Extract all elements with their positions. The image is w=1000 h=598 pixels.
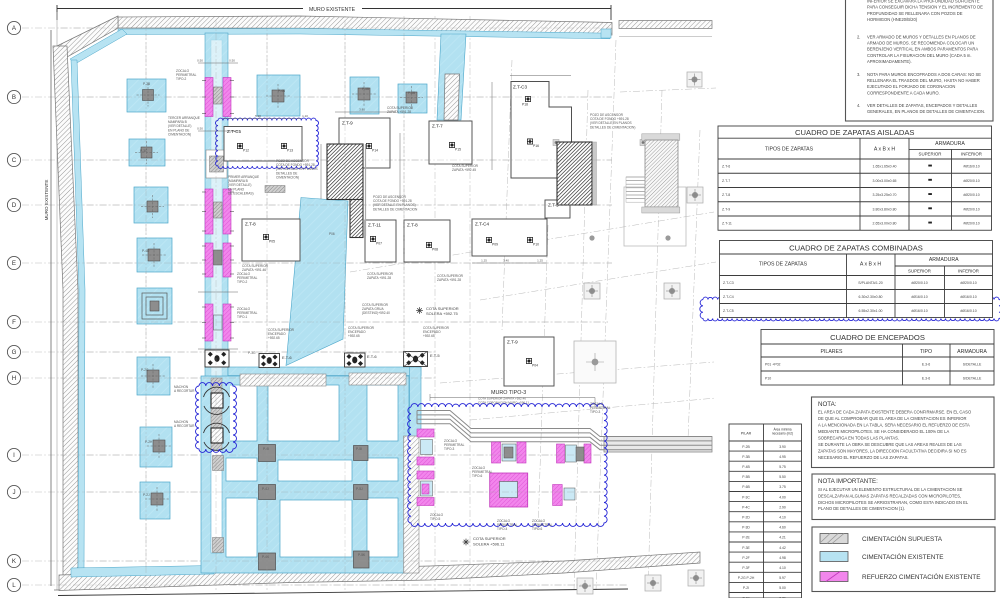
svg-text:A x B x H: A x B x H <box>860 262 882 268</box>
svg-text:P-2B: P-2B <box>143 82 150 86</box>
svg-text:ARMADURA: ARMADURA <box>929 257 959 263</box>
svg-text:ZAPATA +591.28: ZAPATA +591.28 <box>367 276 391 280</box>
svg-text:5.97: 5.97 <box>779 576 786 580</box>
svg-text:VER DETALLES DE ZAPATAS, ENCEP: VER DETALLES DE ZAPATAS, ENCEPADOS Y DET… <box>867 103 978 108</box>
svg-text:P-2I: P-2I <box>743 586 749 590</box>
svg-text:+592.65: +592.65 <box>268 336 280 340</box>
svg-text:P-4K: P-4K <box>262 555 270 559</box>
svg-text:#Ø20/0.10: #Ø20/0.10 <box>963 222 979 226</box>
svg-text:4.10: 4.10 <box>779 566 786 570</box>
svg-text:#Ø16/0.10: #Ø16/0.10 <box>911 309 927 313</box>
svg-text:E: E <box>12 260 16 267</box>
svg-text:P05: P05 <box>269 240 275 244</box>
svg-text:ZAPATAS SON MAYORES, LA DIRECC: ZAPATAS SON MAYORES, LA DIRECCION FACULT… <box>818 449 967 454</box>
svg-text:P-3D: P-3D <box>742 526 750 530</box>
svg-text:I: I <box>13 452 15 459</box>
svg-text:P-3G: P-3G <box>248 351 256 355</box>
svg-text:P-4I: P-4I <box>263 447 269 451</box>
svg-text:P16: P16 <box>533 144 539 148</box>
svg-text:P-3C: P-3C <box>742 495 750 499</box>
svg-text:H: H <box>12 375 16 382</box>
svg-text:PILAR: PILAR <box>741 432 752 436</box>
svg-text:CIMENTACIÓN SUPUESTA: CIMENTACIÓN SUPUESTA <box>862 534 943 543</box>
svg-text:2.: 2. <box>857 35 860 40</box>
svg-text:PILARES: PILARES <box>821 349 843 355</box>
svg-text:NOTA IMPORTANTE:: NOTA IMPORTANTE: <box>818 478 878 485</box>
svg-text:ARMADURA: ARMADURA <box>935 141 965 147</box>
svg-text:6.55x2.30x1.00: 6.55x2.30x1.00 <box>859 309 883 313</box>
svg-text:#Ø20/0.10: #Ø20/0.10 <box>911 281 927 285</box>
svg-text:Z.T-C5: Z.T-C5 <box>723 309 734 313</box>
svg-text:COTA SUPERIOR: COTA SUPERIOR <box>473 536 506 541</box>
svg-text:P-2F: P-2F <box>742 556 749 560</box>
svg-text:CIMENTACIÓN EXISTENTE: CIMENTACIÓN EXISTENTE <box>862 552 944 561</box>
svg-text:P09: P09 <box>492 243 498 247</box>
svg-text:S/DETALLE: S/DETALLE <box>963 363 982 367</box>
svg-text:A RECORTAR: A RECORTAR <box>174 389 195 393</box>
svg-text:Z.T-7: Z.T-7 <box>722 179 730 183</box>
svg-text:PROFUNDIDAD SE RELLENARA CON P: PROFUNDIDAD SE RELLENARA CON POZOS DE <box>867 11 963 16</box>
svg-text:COTA CORONACION MURO +596.11: COTA CORONACION MURO +596.11 <box>478 401 529 405</box>
svg-text:Z.T-C4: Z.T-C4 <box>723 295 734 299</box>
svg-text:NOTA PARA MUROS ENCOFRADOS A D: NOTA PARA MUROS ENCOFRADOS A DOS CARAS: … <box>867 72 981 77</box>
svg-text:5.00: 5.00 <box>779 586 786 590</box>
svg-text:E.3-6: E.3-6 <box>922 377 930 381</box>
svg-text:P-2D: P-2D <box>742 516 750 520</box>
svg-text:CUADRO DE ZAPATAS AISLADAS: CUADRO DE ZAPATAS AISLADAS <box>795 128 914 137</box>
svg-text:P-5B: P-5B <box>742 475 750 479</box>
svg-text:MURO EXISTENTE: MURO EXISTENTE <box>44 180 49 221</box>
svg-text:P01 +P02: P01 +P02 <box>765 363 781 367</box>
svg-text:INFERIOR: INFERIOR <box>961 152 982 157</box>
svg-text:Z.T-C3: Z.T-C3 <box>513 85 527 90</box>
svg-text:4.10: 4.10 <box>779 516 786 520</box>
svg-text:P08: P08 <box>432 248 438 252</box>
svg-text:P18: P18 <box>522 103 528 107</box>
svg-text:#Ø16/0.10: #Ø16/0.10 <box>960 295 976 299</box>
svg-text:P06: P06 <box>329 232 335 236</box>
svg-text:Z.T-C4: Z.T-C4 <box>475 222 489 227</box>
svg-text:DETALLES DE CIMENTACION): DETALLES DE CIMENTACION) <box>590 125 635 129</box>
svg-text:SOLERA +596.11: SOLERA +596.11 <box>473 542 505 547</box>
svg-text:#Ø16/0.10: #Ø16/0.10 <box>960 309 976 313</box>
svg-text:3.80x3.80x0.80: 3.80x3.80x0.80 <box>873 207 897 211</box>
svg-text:TIPOS DE ZAPATAS: TIPOS DE ZAPATAS <box>765 147 814 153</box>
svg-text:#Ø20/0.10: #Ø20/0.10 <box>960 281 976 285</box>
svg-text:E.T-6: E.T-6 <box>367 354 377 359</box>
svg-text:PLANO DE DETALLES DE CIMENTACI: PLANO DE DETALLES DE CIMENTACION (1). <box>818 506 905 511</box>
svg-text:Z.T-11: Z.T-11 <box>722 222 732 226</box>
svg-text:P14: P14 <box>372 149 378 153</box>
svg-text:VER ARMADO DE MUROS Y DETALLES: VER ARMADO DE MUROS Y DETALLES EN PLANOS… <box>867 35 976 40</box>
svg-text:4.60: 4.60 <box>779 526 786 530</box>
svg-text:ARMADURA: ARMADURA <box>957 349 987 355</box>
svg-text:(DESTINO)+592.40: (DESTINO)+592.40 <box>362 311 390 315</box>
svg-text:PARA CONSEGUIR DICHA TENSION Y: PARA CONSEGUIR DICHA TENSION Y EL INCREM… <box>867 5 983 10</box>
svg-text:E.3-6: E.3-6 <box>922 363 930 367</box>
svg-text:P12: P12 <box>243 149 249 153</box>
svg-text:SUPERIOR: SUPERIOR <box>908 268 931 273</box>
svg-text:S/PLANTA/1.20: S/PLANTA/1.20 <box>858 281 883 285</box>
svg-text:TIPO-3: TIPO-3 <box>590 410 600 414</box>
svg-text:ZAPATA +592.45: ZAPATA +592.45 <box>452 168 476 172</box>
svg-text:3.80: 3.80 <box>359 108 365 112</box>
svg-text:L: L <box>12 582 16 589</box>
svg-text:TIPO-6: TIPO-6 <box>532 527 542 531</box>
svg-text:INFERIOR: INFERIOR <box>958 268 979 273</box>
svg-text:NOTA:: NOTA: <box>818 401 837 408</box>
svg-text:MURO TIPO-3: MURO TIPO-3 <box>491 390 526 396</box>
svg-text:A LA MENCIONADA EN LA TABLA, S: A LA MENCIONADA EN LA TABLA, SERA NECESA… <box>818 423 970 428</box>
svg-text:HORMIGON (HNE20/B/20): HORMIGON (HNE20/B/20) <box>867 17 918 22</box>
svg-text:P13: P13 <box>287 149 293 153</box>
svg-text:4.98: 4.98 <box>779 556 786 560</box>
svg-text:P-3E: P-3E <box>742 546 750 550</box>
svg-text:+592.65: +592.65 <box>423 334 435 338</box>
svg-text:P-2G: P-2G <box>141 368 149 372</box>
svg-text:4.95: 4.95 <box>779 455 786 459</box>
svg-text:B: B <box>12 94 16 101</box>
svg-text:4.00: 4.00 <box>779 495 786 499</box>
svg-text:P-2G P-2H: P-2G P-2H <box>738 576 755 580</box>
svg-text:P-5K: P-5K <box>358 553 366 557</box>
svg-text:4.: 4. <box>857 103 860 108</box>
svg-text:TIPO-6: TIPO-6 <box>472 474 482 478</box>
svg-text:DE QUE AL COMPROBAR QUE EL ARE: DE QUE AL COMPROBAR QUE EL AREA DE LA CI… <box>818 416 966 421</box>
svg-text:ZAPATA +591.46: ZAPATA +591.46 <box>242 268 266 272</box>
svg-text:Z.T-8: Z.T-8 <box>407 223 418 228</box>
svg-text:5.75: 5.75 <box>779 465 786 469</box>
svg-text:SI AL EJECUTAR UN ELEMENTO EST: SI AL EJECUTAR UN ELEMENTO ESTRUCTURAL D… <box>818 487 963 492</box>
svg-text:TIPOS DE ZAPATAS: TIPOS DE ZAPATAS <box>759 262 808 268</box>
svg-text:Z.T-C5: Z.T-C5 <box>227 129 241 134</box>
svg-text:+592.65: +592.65 <box>348 334 360 338</box>
svg-text:A x B x H: A x B x H <box>874 147 896 153</box>
svg-text:A RECORTAR: A RECORTAR <box>174 424 195 428</box>
svg-text:D: D <box>12 202 17 209</box>
svg-text:0.50: 0.50 <box>197 127 203 131</box>
svg-text:P-3F: P-3F <box>742 566 749 570</box>
svg-text:CUADRO DE ENCEPADOS: CUADRO DE ENCEPADOS <box>830 333 925 342</box>
svg-text:CUADRO DE ZAPATAS COMBINADAS: CUADRO DE ZAPATAS COMBINADAS <box>789 244 923 253</box>
svg-text:3.: 3. <box>857 72 860 77</box>
svg-text:5.90: 5.90 <box>255 114 261 118</box>
svg-text:C: C <box>12 157 17 164</box>
svg-text:2.90: 2.90 <box>779 505 786 509</box>
svg-text:DETALLES DE CIMENTACION: DETALLES DE CIMENTACION <box>373 207 418 211</box>
svg-text:EL AREA DE CADA ZAPATA EXISTEN: EL AREA DE CADA ZAPATA EXISTENTE DEBERA … <box>818 410 972 415</box>
svg-text:MEDIANTE MICROPILOTES. SE HA C: MEDIANTE MICROPILOTES. SE HA CONSIDERADO… <box>818 429 949 434</box>
svg-text:GENERALES, EN PLANOS DE DETALL: GENERALES, EN PLANOS DE DETALLES DE CIME… <box>867 109 985 114</box>
svg-text:1.10: 1.10 <box>302 114 308 118</box>
svg-text:P-5B: P-5B <box>362 87 369 91</box>
svg-text:S/DETALLE: S/DETALLE <box>963 377 982 381</box>
svg-text:Z.T-9: Z.T-9 <box>507 340 518 345</box>
svg-text:1.25: 1.25 <box>481 259 487 263</box>
svg-text:CORRESPONDIENTE A CADA MURO.: CORRESPONDIENTE A CADA MURO. <box>867 90 940 95</box>
svg-text:P-2E: P-2E <box>742 536 750 540</box>
svg-text:P-4B: P-4B <box>278 89 285 93</box>
svg-text:1.65x1.65x0.40: 1.65x1.65x0.40 <box>873 165 897 169</box>
svg-text:0.50: 0.50 <box>197 59 203 63</box>
svg-text:#Ø20/0.10: #Ø20/0.10 <box>963 207 979 211</box>
svg-text:P-5J: P-5J <box>356 487 363 491</box>
svg-text:DE ESCALERAS): DE ESCALERAS) <box>228 191 254 195</box>
svg-text:REFUERZO CIMENTACIÓN EXISTENTE: REFUERZO CIMENTACIÓN EXISTENTE <box>862 572 980 581</box>
svg-text:CIMENTACION): CIMENTACION) <box>276 175 299 179</box>
svg-text:P-3B: P-3B <box>742 455 750 459</box>
svg-text:1.25: 1.25 <box>537 259 543 263</box>
svg-text:P-5I: P-5I <box>356 447 362 451</box>
svg-text:3.90: 3.90 <box>779 445 786 449</box>
svg-text:P-2J: P-2J <box>143 493 150 497</box>
svg-text:TIPO-1: TIPO-1 <box>237 315 247 319</box>
svg-text:SOLERA +592.75: SOLERA +592.75 <box>426 311 458 316</box>
svg-text:3.40: 3.40 <box>503 259 509 263</box>
svg-text:MURO EXISTENTE: MURO EXISTENTE <box>309 7 356 13</box>
svg-text:P-4B: P-4B <box>742 465 750 469</box>
svg-text:P-2B: P-2B <box>742 445 750 449</box>
svg-text:SUPERIOR: SUPERIOR <box>919 152 942 157</box>
svg-text:P04: P04 <box>532 364 538 368</box>
svg-text:APROXIMADAMENTE).: APROXIMADAMENTE). <box>867 59 912 64</box>
svg-text:3.00x3.00x0.65: 3.00x3.00x0.65 <box>873 179 897 183</box>
svg-text:2.65x3.00x0.80: 2.65x3.00x0.80 <box>873 222 897 226</box>
svg-text:6.30x2.30x0.80: 6.30x2.30x0.80 <box>859 295 883 299</box>
svg-text:P15: P15 <box>455 148 461 152</box>
svg-text:necesario (m2): necesario (m2) <box>772 432 793 436</box>
svg-text:EJECUTADO EL FORJADO DE CORONA: EJECUTADO EL FORJADO DE CORONACION <box>867 84 955 89</box>
svg-text:Z.T-8: Z.T-8 <box>722 193 730 197</box>
svg-text:Z.T-C3: Z.T-C3 <box>723 281 734 285</box>
svg-text:TIPO-3: TIPO-3 <box>444 447 454 451</box>
svg-text:P-6B: P-6B <box>742 485 750 489</box>
svg-text:NECESARIO EL REFUERZO DE LAS Z: NECESARIO EL REFUERZO DE LAS ZAPATAS. <box>818 455 909 460</box>
svg-text:DICHOS MICROPILOTES SE ARRIOST: DICHOS MICROPILOTES SE ARRIOSTRARAN, COM… <box>818 500 969 505</box>
svg-text:P07: P07 <box>376 242 382 246</box>
svg-text:5.50: 5.50 <box>779 475 786 479</box>
svg-text:Z.T-7: Z.T-7 <box>432 124 443 129</box>
svg-text:4.42: 4.42 <box>779 546 786 550</box>
svg-text:#Ø20/0.10: #Ø20/0.10 <box>963 179 979 183</box>
svg-text:P-6B: P-6B <box>408 91 415 95</box>
svg-text:G: G <box>12 349 17 356</box>
svg-text:#Ø16/0.10: #Ø16/0.10 <box>963 165 979 169</box>
svg-text:Z.T-9: Z.T-9 <box>722 207 730 211</box>
svg-text:TIPO-4: TIPO-4 <box>497 527 507 531</box>
svg-text:0.50: 0.50 <box>229 59 235 63</box>
svg-text:TIPO-5: TIPO-5 <box>430 517 440 521</box>
svg-text:Z.T-9: Z.T-9 <box>342 121 353 126</box>
svg-text:4.21: 4.21 <box>779 536 786 540</box>
svg-text:DESCALZARAN ALGUNAS ZAPATAS RE: DESCALZARAN ALGUNAS ZAPATAS RECALZADAS C… <box>818 493 961 498</box>
svg-text:TIPO-2: TIPO-2 <box>176 77 186 81</box>
svg-text:E.T-6: E.T-6 <box>282 355 292 360</box>
svg-text:CONTROLAR LA FISURACION DEL MU: CONTROLAR LA FISURACION DEL MURO (CADA 5… <box>867 53 972 58</box>
svg-text:#Ø20/0.10: #Ø20/0.10 <box>963 193 979 197</box>
svg-text:#Ø16/0.10: #Ø16/0.10 <box>911 295 927 299</box>
svg-text:Z.T-6: Z.T-6 <box>722 165 730 169</box>
svg-text:P10: P10 <box>533 243 539 247</box>
svg-text:P-3C: P-3C <box>140 149 148 153</box>
svg-text:E.T-5: E.T-5 <box>430 353 440 358</box>
svg-text:TIPO-2: TIPO-2 <box>237 280 247 284</box>
svg-text:Z.T-11: Z.T-11 <box>368 223 381 228</box>
svg-text:F: F <box>12 319 16 326</box>
svg-text:P-4J: P-4J <box>262 487 269 491</box>
svg-text:3.25x3.25x0.70: 3.25x3.25x0.70 <box>873 193 897 197</box>
svg-text:INFERIOR SE EXCAVARA LA PROFUN: INFERIOR SE EXCAVARA LA PROFUNDIDAD SUFI… <box>867 0 980 4</box>
svg-text:CIMENTACION): CIMENTACION) <box>168 132 191 136</box>
svg-text:RELLENARA EL TRASDOS DEL MURO,: RELLENARA EL TRASDOS DEL MURO, HASTA NO … <box>867 78 980 83</box>
svg-text:P10: P10 <box>765 377 771 381</box>
svg-text:Z.T-8: Z.T-8 <box>245 222 256 227</box>
svg-text:BERENJENO VERTICAL EN AMBOS PA: BERENJENO VERTICAL EN AMBOS PARAMENTOS P… <box>867 47 978 52</box>
svg-text:TIPO: TIPO <box>920 349 932 355</box>
svg-text:ZAPATA +591.28: ZAPATA +591.28 <box>437 278 461 282</box>
svg-text:ARMADO DE MUROS. SE RECOMIENDA: ARMADO DE MUROS. SE RECOMIENDA COLOCAR U… <box>867 41 974 46</box>
svg-text:SE DURANTE LA OBRA SE DESCUBRE: SE DURANTE LA OBRA SE DESCUBRE QUE LAS A… <box>818 442 962 447</box>
svg-text:J: J <box>12 489 15 496</box>
svg-text:3.75: 3.75 <box>779 485 786 489</box>
svg-text:P-4C: P-4C <box>742 505 750 509</box>
svg-text:SOBRECARGA EN TODAS LAS PLANTA: SOBRECARGA EN TODAS LAS PLANTAS. <box>818 436 899 441</box>
